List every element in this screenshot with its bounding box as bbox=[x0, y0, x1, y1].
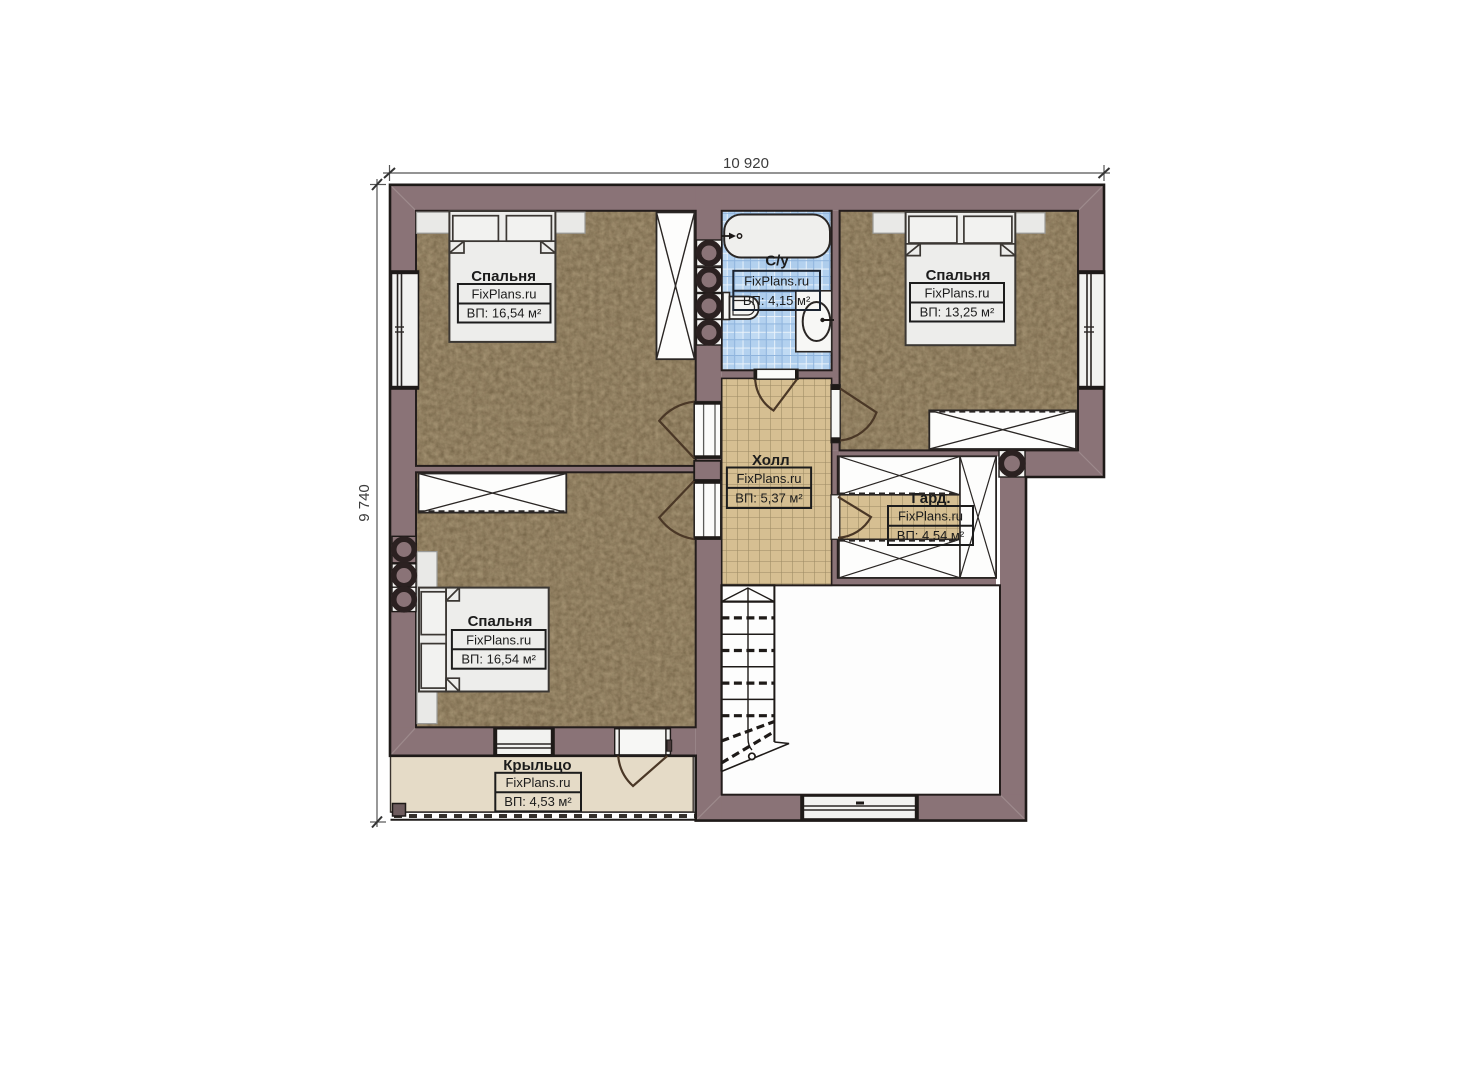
svg-text:Спальня: Спальня bbox=[926, 267, 991, 284]
svg-text:Спальня: Спальня bbox=[468, 613, 533, 630]
svg-text:10 920: 10 920 bbox=[723, 155, 769, 172]
svg-text:Гард.: Гард. bbox=[911, 490, 950, 507]
svg-text:FixPlans.ru: FixPlans.ru bbox=[471, 287, 536, 302]
svg-text:ВП: 5,37 м²: ВП: 5,37 м² bbox=[735, 490, 803, 505]
svg-text:FixPlans.ru: FixPlans.ru bbox=[744, 274, 809, 289]
svg-text:ВП: 16,54 м²: ВП: 16,54 м² bbox=[461, 652, 536, 667]
svg-text:FixPlans.ru: FixPlans.ru bbox=[924, 286, 989, 301]
svg-text:FixPlans.ru: FixPlans.ru bbox=[505, 775, 570, 790]
svg-text:ВП: 4,15 м²: ВП: 4,15 м² bbox=[743, 293, 811, 308]
svg-text:ВП: 4,54 м²: ВП: 4,54 м² bbox=[897, 528, 965, 543]
svg-text:ВП: 16,54 м²: ВП: 16,54 м² bbox=[467, 306, 542, 321]
svg-text:Крыльцо: Крыльцо bbox=[503, 757, 571, 774]
svg-text:FixPlans.ru: FixPlans.ru bbox=[898, 509, 963, 524]
svg-text:ВП: 13,25 м²: ВП: 13,25 м² bbox=[920, 305, 995, 320]
svg-text:9 740: 9 740 bbox=[356, 484, 373, 522]
svg-text:С/у: С/у bbox=[765, 253, 789, 270]
svg-text:FixPlans.ru: FixPlans.ru bbox=[736, 471, 801, 486]
svg-text:Спальня: Спальня bbox=[471, 268, 536, 285]
svg-text:FixPlans.ru: FixPlans.ru bbox=[466, 633, 531, 648]
svg-text:Холл: Холл bbox=[752, 452, 790, 469]
svg-text:ВП: 4,53 м²: ВП: 4,53 м² bbox=[504, 794, 572, 809]
